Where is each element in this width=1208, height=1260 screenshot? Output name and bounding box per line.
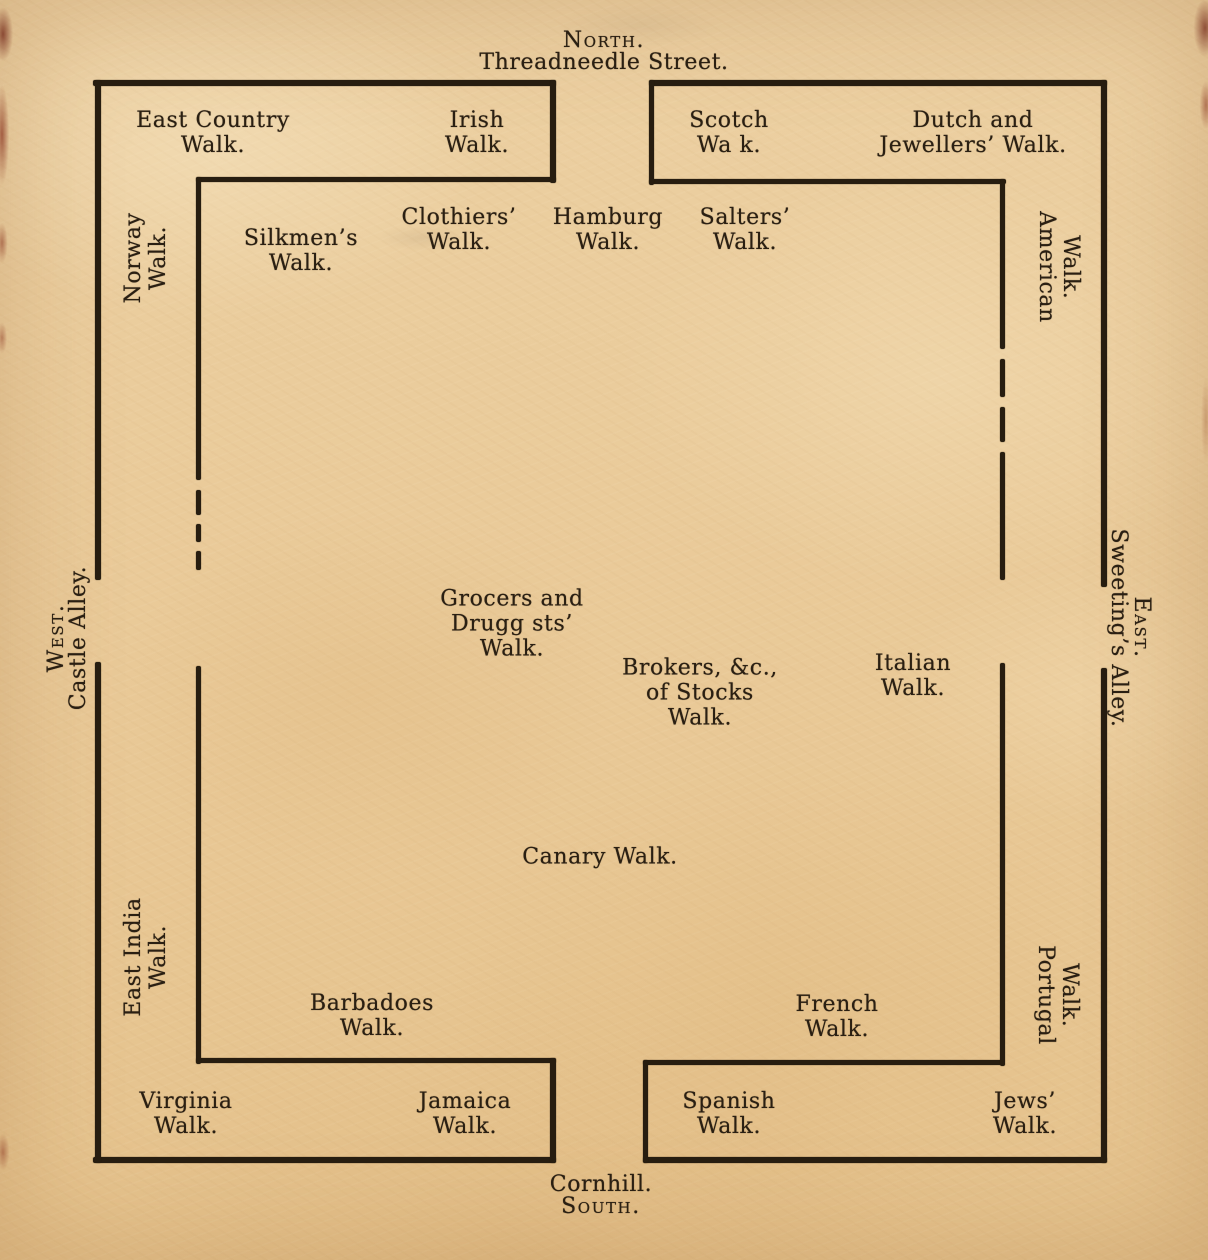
walk-label-american: American Walk. (1034, 211, 1082, 323)
wall-inner-west-upper-c (196, 524, 201, 542)
wall-inner-bottom-east (643, 1060, 1003, 1065)
wall-outer-top-west (93, 80, 556, 86)
wall-inner-bottom-west (196, 1058, 556, 1063)
walk-label-italian: Italian Walk. (875, 651, 951, 701)
wall-outer-west-lower (95, 662, 101, 1163)
walk-label-jamaica: Jamaica Walk. (419, 1089, 512, 1139)
wall-outer-top-east (649, 80, 1107, 86)
walk-label-norway: Norway Walk. (121, 213, 171, 304)
walk-label-irish: Irish Walk. (445, 108, 509, 158)
wall-outer-bottom-west (93, 1157, 556, 1163)
walk-label-salters: Salters’ Walk. (700, 205, 791, 255)
wall-inner-top-east (649, 179, 1006, 184)
compass-north-direction: North. (479, 30, 728, 52)
wall-north-passage-east (649, 80, 654, 185)
wall-inner-east-upper-c (1000, 407, 1005, 442)
street-sweetings-alley: Sweeting’s Alley. (1107, 528, 1130, 727)
walk-label-east-country: East Country Walk. (136, 108, 290, 158)
compass-south-direction: South. (550, 1196, 652, 1218)
walk-label-grocers-druggists: Grocers and Drugg sts’ Walk. (440, 587, 583, 662)
compass-west-direction: West. (46, 566, 68, 710)
wall-south-passage-east (643, 1060, 648, 1163)
walk-label-hamburg: Hamburg Walk. (553, 205, 663, 255)
wall-inner-west-upper-d (196, 551, 201, 570)
wall-inner-top-west (196, 177, 556, 182)
walk-label-french: French Walk. (795, 992, 878, 1042)
street-castle-alley: Castle Alley. (68, 566, 90, 710)
street-cornhill: Cornhill. (550, 1174, 652, 1196)
wall-inner-east-lower (1000, 663, 1005, 1066)
royal-exchange-plan: North. Threadneedle Street. Cornhill. So… (0, 0, 1208, 1260)
walk-label-scotch: Scotch Wa k. (689, 108, 769, 158)
walk-label-silkmens: Silkmen’s Walk. (244, 226, 358, 276)
wall-outer-west-upper (95, 80, 101, 580)
wall-inner-east-upper-d (1000, 452, 1005, 580)
compass-south: Cornhill. South. (550, 1174, 652, 1218)
walk-label-clothiers: Clothiers’ Walk. (402, 205, 517, 255)
wall-inner-east-upper-a (1000, 179, 1005, 349)
wall-outer-east-upper (1101, 80, 1107, 587)
wall-inner-west-upper-b (196, 490, 201, 515)
wall-inner-east-upper-b (1000, 359, 1005, 397)
wall-south-passage-west (550, 1058, 556, 1163)
wall-outer-bottom-east (643, 1157, 1107, 1163)
wall-inner-west-upper-a (196, 177, 201, 480)
compass-north: North. Threadneedle Street. (479, 30, 728, 74)
walk-label-canary: Canary Walk. (522, 845, 678, 870)
wall-north-passage-west (550, 80, 556, 183)
wall-outer-east-lower (1101, 668, 1107, 1163)
walk-label-portugal: Portugal Walk. (1033, 945, 1081, 1045)
walk-label-dutch-jewellers: Dutch and Jewellers’ Walk. (879, 108, 1066, 158)
street-threadneedle: Threadneedle Street. (479, 52, 728, 74)
compass-east: East. Sweeting’s Alley. (1107, 528, 1153, 727)
walk-label-virginia: Virginia Walk. (139, 1089, 232, 1139)
compass-west: West. Castle Alley. (46, 566, 90, 710)
walk-label-spanish: Spanish Walk. (682, 1089, 775, 1139)
wall-inner-west-lower (196, 666, 201, 1064)
walk-label-jews: Jews’ Walk. (993, 1089, 1057, 1139)
walk-label-east-india: East India Walk. (121, 897, 171, 1016)
walk-label-barbadoes: Barbadoes Walk. (310, 991, 434, 1041)
compass-east-direction: East. (1130, 528, 1153, 727)
walk-label-brokers-of-stocks: Brokers, &c., of Stocks Walk. (622, 656, 778, 731)
